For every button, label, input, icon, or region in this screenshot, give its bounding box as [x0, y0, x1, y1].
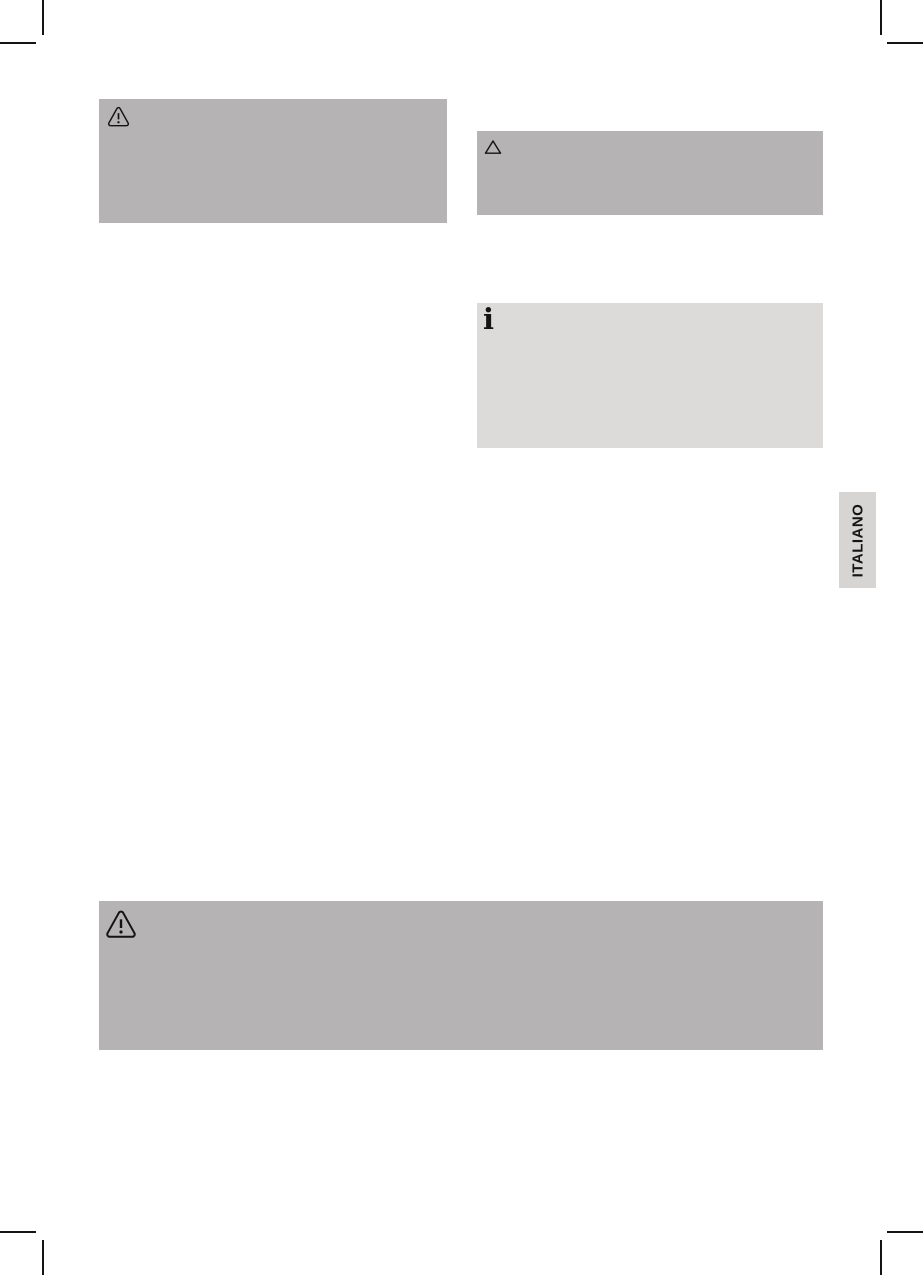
crop-mark-top-right-horizontal: [887, 42, 923, 44]
crop-mark-top-right-vertical: [880, 0, 882, 35]
warning-triangle-icon: [105, 909, 137, 939]
crop-mark-bottom-right-vertical: [880, 1240, 882, 1275]
language-tab-italiano: ITALIANO: [839, 492, 876, 588]
crop-mark-top-left-horizontal: [0, 42, 36, 44]
language-tab-label: ITALIANO: [849, 503, 866, 577]
info-notice-box: i: [477, 303, 823, 448]
manual-page: i ITALIANO: [0, 0, 923, 1275]
crop-mark-bottom-left-vertical: [42, 1240, 44, 1275]
caution-notice-box-top-right: [477, 131, 823, 215]
warning-triangle-icon: [107, 106, 130, 127]
crop-mark-bottom-left-horizontal: [0, 1231, 36, 1233]
warning-notice-box-bottom: [99, 901, 823, 1050]
info-icon: i: [483, 305, 494, 334]
crop-mark-bottom-right-horizontal: [887, 1231, 923, 1233]
crop-mark-top-left-vertical: [42, 0, 44, 35]
warning-notice-box-top-left: [99, 99, 447, 223]
triangle-icon: [484, 139, 502, 155]
